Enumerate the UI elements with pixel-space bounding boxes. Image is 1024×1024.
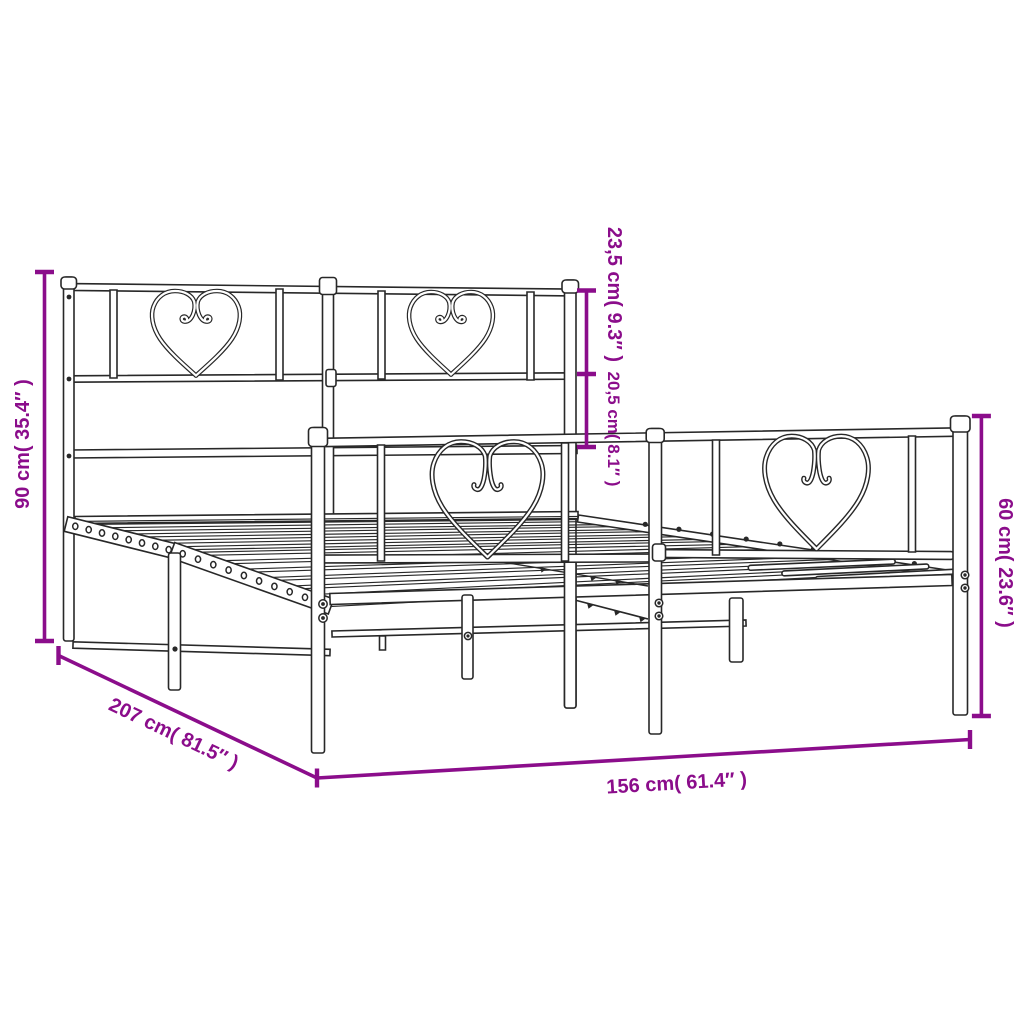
svg-text:23,5 cm( 9.3″ ): 23,5 cm( 9.3″ ) — [603, 227, 625, 362]
svg-text:60 cm( 23.6″ ): 60 cm( 23.6″ ) — [994, 498, 1016, 628]
svg-text:90 cm( 35.4″ ): 90 cm( 35.4″ ) — [12, 379, 34, 509]
svg-text:20,5 cm( 8.1″ ): 20,5 cm( 8.1″ ) — [604, 372, 623, 487]
